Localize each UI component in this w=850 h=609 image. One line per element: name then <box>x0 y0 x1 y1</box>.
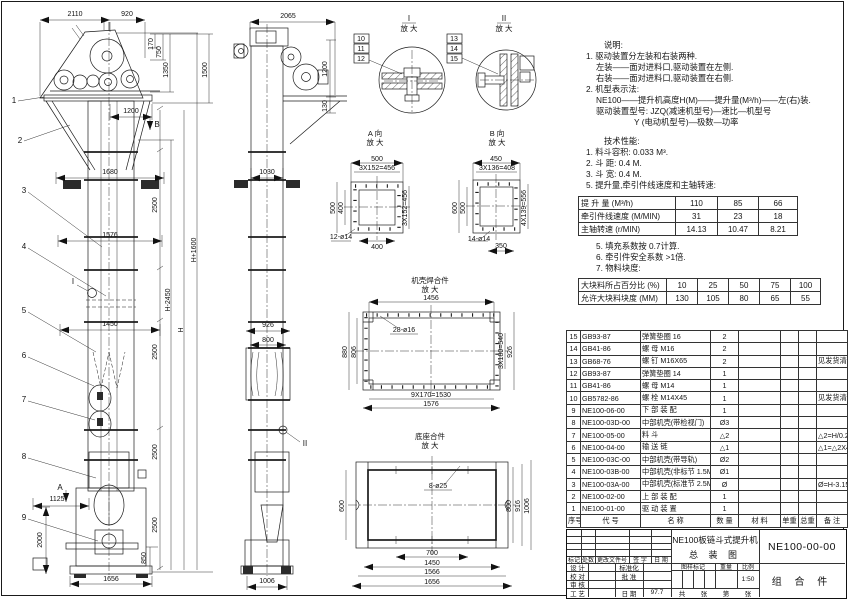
dim-label: 1566 <box>424 569 440 576</box>
bom-row: 10GB5782-86螺 栓 M14X451见发货清单 <box>567 392 848 404</box>
dim-label: 1200 <box>322 61 329 77</box>
dim-label: 2500 <box>152 517 159 533</box>
tech-heading: 技术性能: <box>574 136 716 147</box>
dim-label: 450 <box>490 156 502 163</box>
sheet-count-label: 张 <box>745 588 752 597</box>
dim-label: 3X136=408 <box>479 165 515 172</box>
side-elevation-view: 2065 1200 130 1030 926 800 1006 II <box>234 13 347 590</box>
dim-label: 1656 <box>103 576 119 583</box>
tech-section: 技术性能: 1. 料斗容积: 0.033 M³. 2. 斗 距: 0.4 M. … <box>574 136 716 191</box>
dim-label: 806 <box>351 346 358 358</box>
dim-label: 130 <box>322 100 329 112</box>
view-arrow-a: A <box>57 483 63 492</box>
sheet-count-label: 张 <box>701 588 708 597</box>
dim-label: 1006 <box>524 498 531 514</box>
detail-view-ii: II 放 大 13 14 15 <box>447 14 536 110</box>
tech-item: 2. 斗 距: 0.4 M. <box>574 158 716 169</box>
signature-label: 日 期 <box>615 588 643 597</box>
view-subtitle: 放 大 <box>421 440 439 450</box>
dim-label: 750 <box>156 46 163 58</box>
dim-label: 1125 <box>49 496 64 503</box>
dim-label: 350 <box>495 243 507 250</box>
dim-label: 800 <box>506 500 513 512</box>
bom-row: 4NE100-03B-00中部机壳(非标节 1.5M,1M)Ø1 <box>567 466 848 478</box>
dim-label: 400 <box>338 202 345 214</box>
dim-label: H-2450 <box>165 288 172 311</box>
view-title: 机壳焊合件 <box>411 275 449 285</box>
dim-label: 1656 <box>424 579 440 586</box>
bom-row: 7NE100-05-00料 斗△2△2=H/0.2+5.75 <box>567 429 848 441</box>
drawing-title: NE100板链斗式提升机 <box>671 532 759 547</box>
dim-label: 800 <box>262 337 274 344</box>
dim-label: 700 <box>426 550 438 557</box>
bom-row: 11GB41-86螺 母 M141 <box>567 380 848 392</box>
tech-item: 7. 物料块度: <box>574 263 686 274</box>
sheet-count: 共 张 第 张 <box>671 588 759 597</box>
balloon: 9 <box>22 513 27 522</box>
dim-label: 1350 <box>163 62 170 78</box>
dim-label: 500 <box>330 202 337 214</box>
parts-list-table: 15GB93-87弹簧垫圈 162 14GB41-86螺 母 M162 13GB… <box>566 330 848 528</box>
balloon: 6 <box>22 351 27 360</box>
balloon: 8 <box>22 452 27 461</box>
dim-label: H <box>178 327 185 332</box>
balloon: 11 <box>357 46 364 53</box>
view-b-flange: B 向 放 大 450 3X136=408 600 500 4X139=556 … <box>452 128 528 251</box>
rev-header: 处数 <box>581 556 595 563</box>
dim-label: 880 <box>342 346 349 358</box>
tech-item: 5. 填充系数按 0.7计算. <box>574 241 686 252</box>
dim-label: 1456 <box>423 295 439 302</box>
dim-label: 2500 <box>152 197 159 213</box>
signature-label: 工 艺 <box>567 588 588 597</box>
bom-row: 3NE100-03A-00中部机壳(标准节 2.5M)ØØ=H-3.15/2.5 <box>567 478 848 490</box>
dim-label: 1576 <box>423 401 439 408</box>
balloon: 14 <box>450 46 458 53</box>
rev-header: 标记 <box>567 556 581 563</box>
dim-label: 1500 <box>202 62 209 78</box>
lump-size-table: 大块料所占百分比 (%) 10 25 50 75 100 允许大块料块度 (MM… <box>578 278 821 305</box>
performance-table: 提 升 量 (M³/h) 110 85 66 牵引件线速度 (M/MIN) 31… <box>578 196 798 236</box>
balloon: 3 <box>22 186 27 195</box>
hole-callout: 8-ø25 <box>429 483 447 490</box>
title-block: 标记 处数 更改文件号 签 字 日 期 设 计 标准化 校 对 批 准 审 核 … <box>566 529 847 599</box>
dim-label: 3X152=456 <box>402 190 409 226</box>
detail-marker-i: I <box>72 277 74 286</box>
dim-label: 1576 <box>102 232 118 239</box>
table-row: 允许大块料块度 (MM) 130 105 80 65 55 <box>579 292 821 305</box>
bom-header-row: 序号 代 号 名 称 数 量 材 料 单重 总重 备 注 <box>567 515 848 527</box>
balloon: 10 <box>357 36 365 43</box>
view-a-flange: A 向 放 大 500 3X152=456 500 400 3X152=456 … <box>330 128 410 251</box>
view-arrow-b: B <box>154 120 159 129</box>
mark-header: 图样标记 <box>671 563 715 570</box>
notes-section: 说明: 1. 驱动装置分左装和右装两种. 左装——面对进料口,驱动装置在左侧. … <box>574 40 811 128</box>
dim-label: 500 <box>460 202 467 214</box>
balloon: 5 <box>22 306 27 315</box>
dim-label: 2110 <box>67 11 82 18</box>
drawing-sheet: 2110 920 170 750 1350 1500 1200 B 1680 1… <box>0 0 850 609</box>
bom-row: 13GB68-76螺 钉 M16X652见发货清单 <box>567 355 848 367</box>
dim-label: 2065 <box>280 13 296 20</box>
drawing-subtitle: 总 装 图 <box>671 547 759 562</box>
mark-header: 重量 <box>715 563 737 570</box>
dim-label: 850 <box>141 552 148 564</box>
balloon: 7 <box>22 395 27 404</box>
bom-row: 12GB93-87弹簧垫圈 141 <box>567 367 848 379</box>
dim-label: 1680 <box>102 169 118 176</box>
bom-row: 15GB93-87弹簧垫圈 162 <box>567 331 848 343</box>
dim-label: 170 <box>148 38 155 50</box>
signature-label: 设 计 <box>567 563 588 571</box>
scale-value: 1:50 <box>737 570 759 588</box>
drawing-number: NE100-00-00 <box>759 530 845 563</box>
note-line: 驱动装置型号: JZQ(减速机型号)—速比—机型号 <box>574 106 811 117</box>
view-subtitle: 放 大 <box>421 284 439 294</box>
note-line: NE100——提升机高度H(M)——提升量(M³/h)——左(右)装. <box>574 95 811 106</box>
dim-label: 916 <box>515 500 522 512</box>
front-elevation-view: 2110 920 170 750 1350 1500 1200 B 1680 1… <box>12 11 213 587</box>
dim-label: 926 <box>507 346 514 358</box>
bom-row: 1NE100-01-00驱 动 装 置1 <box>567 503 848 515</box>
dim-label: 2500 <box>152 444 159 460</box>
view-subtitle: 放 大 <box>488 137 506 147</box>
dim-label: 1006 <box>259 578 275 585</box>
dim-label: 1030 <box>259 169 275 176</box>
sheet-count-label: 共 <box>679 588 686 597</box>
detail-title: I <box>408 14 410 23</box>
balloon: 2 <box>18 136 23 145</box>
dim-label: 1200 <box>123 108 139 115</box>
view-title: 底座合件 <box>415 431 445 441</box>
dim-label: 2500 <box>152 344 159 360</box>
note-line: 左装——面对进料口,驱动装置在左侧. <box>574 62 811 73</box>
table-row: 提 升 量 (M³/h) 110 85 66 <box>579 197 798 210</box>
bom-row: 2NE100-02-00上 部 装 配1 <box>567 490 848 502</box>
tech-item: 5. 提升量,牵引件线速度和主轴转速: <box>574 180 716 191</box>
balloon: 15 <box>450 56 458 63</box>
note-line: 右装——面对进料口,驱动装置在右侧. <box>574 73 811 84</box>
detail-subtitle: 放 大 <box>495 23 513 33</box>
note-line: 1. 驱动装置分左装和右装两种. <box>574 51 811 62</box>
note-line: 2. 机型表示法: <box>574 84 811 95</box>
signature-label: 审 核 <box>567 580 588 588</box>
hole-callout: 28-ø16 <box>393 327 415 334</box>
rev-header: 更改文件号 <box>595 556 629 563</box>
rev-header: 签 字 <box>629 556 651 563</box>
detail-title: II <box>502 14 506 23</box>
hole-callout: 14-ø14 <box>468 236 490 243</box>
balloon: 12 <box>357 56 365 63</box>
base-assembly-view: 底座合件 放 大 8-ø25 600 800 916 1006 700 1450… <box>339 431 531 586</box>
view-title: A 向 <box>368 128 382 138</box>
view-title: B 向 <box>490 128 505 138</box>
note-line: Y (电动机型号)—极数—功率 <box>574 117 811 128</box>
tech-item: 1. 料斗容积: 0.033 M³. <box>574 147 716 158</box>
dim-label: 400 <box>371 244 383 251</box>
balloon: 13 <box>450 36 458 43</box>
table-row: 牵引件线速度 (M/MIN) 31 23 18 <box>579 210 798 223</box>
signature-label: 标准化 <box>615 563 643 571</box>
hole-callout: 12-ø14 <box>330 234 352 241</box>
balloon: 1 <box>12 96 17 105</box>
bom-row: 6NE100-04-00输 送 链△1△1=△2X4 <box>567 441 848 453</box>
dim-label: 926 <box>262 322 274 329</box>
dim-label: 600 <box>339 500 346 512</box>
dim-label: 2000 <box>37 532 44 548</box>
drawing-area: 2110 920 170 750 1350 1500 1200 B 1680 1… <box>0 0 562 609</box>
dim-label: 1450 <box>424 560 440 567</box>
bom-row: 9NE100-06-00下 部 装 配1 <box>567 404 848 416</box>
bom-row: 14GB41-86螺 母 M162 <box>567 343 848 355</box>
balloon: 4 <box>22 242 27 251</box>
signature-label: 批 准 <box>615 571 643 580</box>
table-row: 主轴转速 (r/MIN) 14.13 10.47 8.21 <box>579 223 798 236</box>
dim-label: 3X152=456 <box>359 165 395 172</box>
detail-view-i: I 放 大 10 11 12 <box>354 14 445 113</box>
bom-row: 5NE100-03C-00中部机壳(带导轨)Ø2 <box>567 453 848 465</box>
dim-label: 500 <box>371 156 383 163</box>
table-row: 大块料所占百分比 (%) 10 25 50 75 100 <box>579 279 821 292</box>
date-value: 97.7 <box>643 588 671 597</box>
sheet-count-label: 第 <box>723 588 730 597</box>
dim-label: 3X180=540 <box>498 333 505 369</box>
rev-header: 日 期 <box>651 556 671 563</box>
mark-header: 比例 <box>737 563 759 570</box>
dim-label: 9X170=1530 <box>411 392 451 399</box>
notes-heading: 说明: <box>574 40 811 51</box>
tech-item: 3. 斗 宽: 0.4 M. <box>574 169 716 180</box>
signature-label: 校 对 <box>567 571 588 580</box>
dim-label: 920 <box>121 11 133 18</box>
dim-label: 600 <box>452 202 459 214</box>
casing-weldment-view: 机壳焊合件 放 大 1456 28-ø16 880 806 3X180=540 … <box>342 275 514 408</box>
detail-subtitle: 放 大 <box>400 23 418 33</box>
tech-item: 6. 牵引件安全系数 >1倍. <box>574 252 686 263</box>
dim-label: 1450 <box>102 321 118 328</box>
part-type: 组 合 件 <box>759 563 845 597</box>
dim-label: 4X139=556 <box>521 190 528 226</box>
detail-marker-ii: II <box>303 439 307 448</box>
view-subtitle: 放 大 <box>366 137 384 147</box>
dim-label: H+1600 <box>191 238 198 263</box>
tech-section-2: 5. 填充系数按 0.7计算. 6. 牵引件安全系数 >1倍. 7. 物料块度: <box>574 241 686 274</box>
bom-row: 8NE100-03D-00中部机壳(带检视门)Ø3 <box>567 417 848 429</box>
